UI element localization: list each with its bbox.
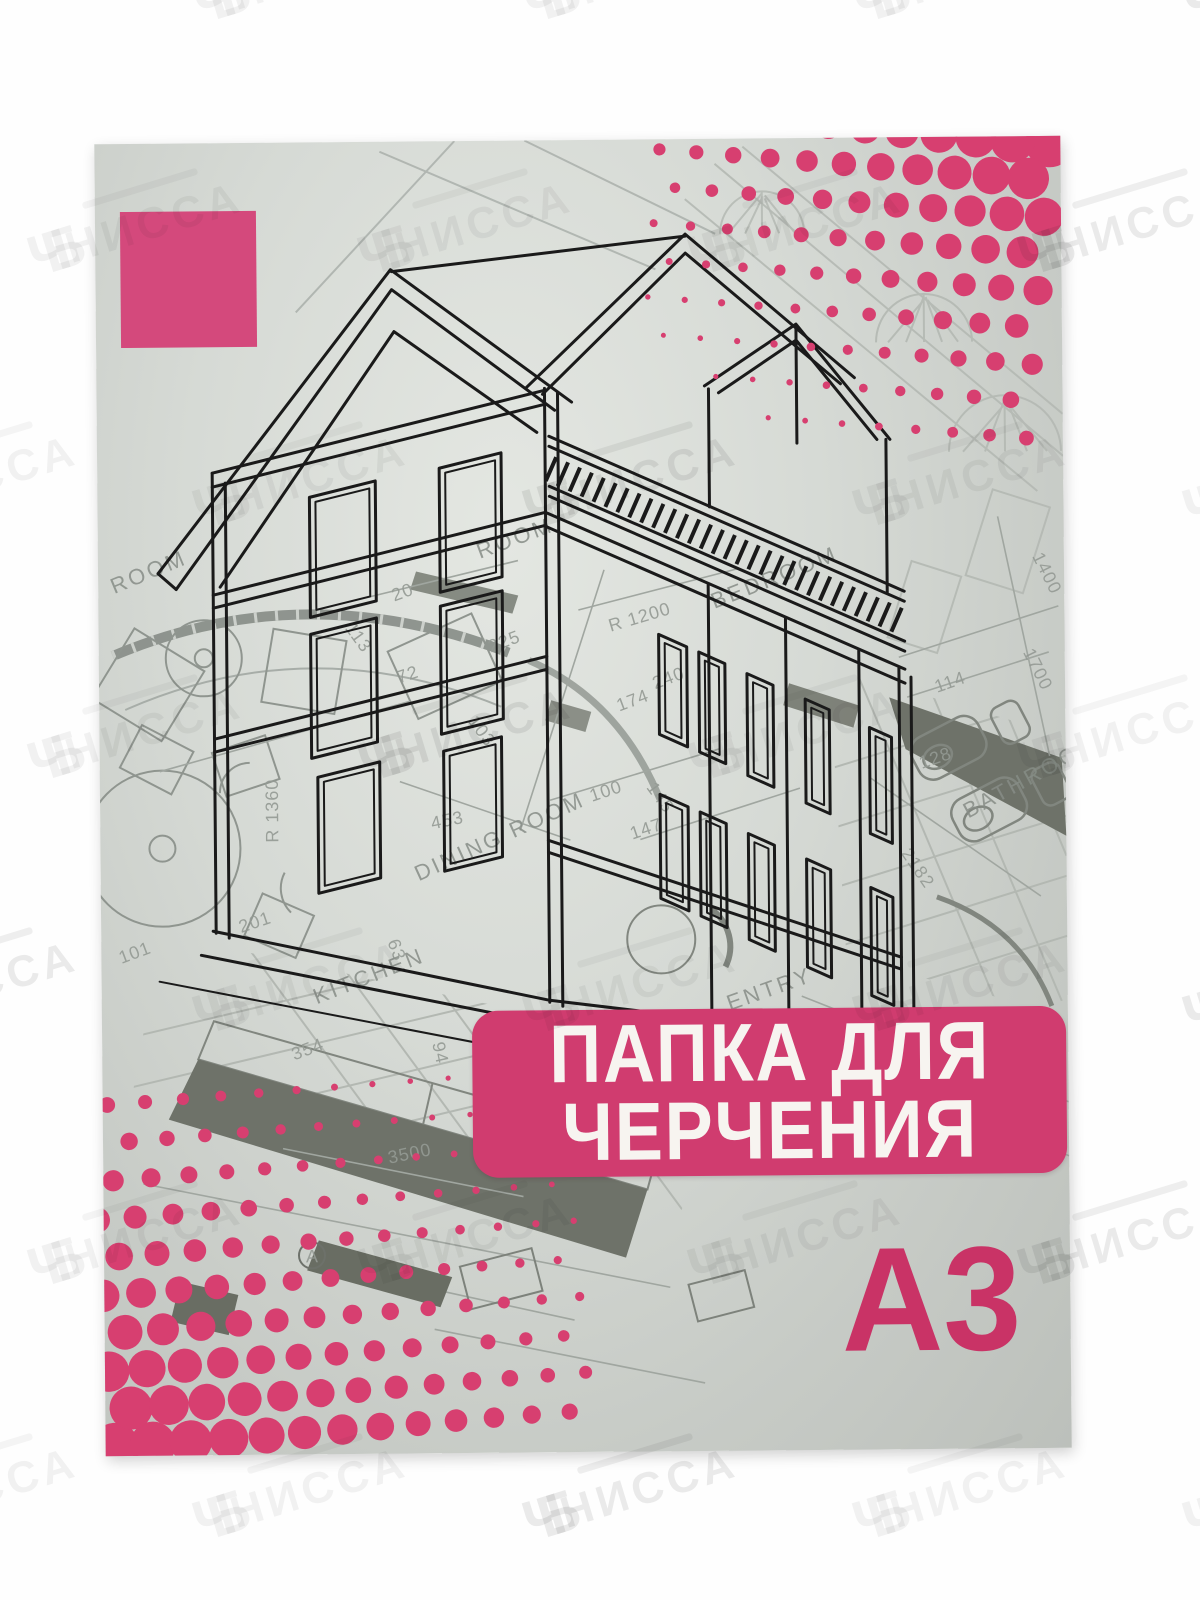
watermark-brand: НИССА [886,1441,1074,1536]
title-line-1: ПАПКА ДЛЯ [548,1012,990,1094]
blueprint-dim: 72 [394,661,421,687]
watermark-brand: НИССА [0,429,83,524]
watermark-brand: НИССА [1051,1188,1200,1283]
watermark: ЧБНИССА [846,1432,1074,1552]
nissa-logo-icon: ЧБ [21,1235,67,1299]
watermark-brand: НИССА [0,1441,83,1536]
blueprint-dim: 201 [236,907,274,936]
nissa-logo-icon: ЧБ [21,223,67,287]
nissa-logo-icon: ЧБ [186,0,232,34]
blueprint-dim: 94 [428,1040,452,1066]
watermark-brand: НИССА [226,0,414,18]
format-label: А3 [822,1244,1041,1356]
blueprint-dim: 174 [614,685,652,715]
watermark: ЧБНИССА [516,0,744,34]
watermark: ЧБНИССА [1176,926,1200,1046]
blueprint-dim: 453 [429,807,465,833]
halftone-top-right [632,136,1071,448]
watermark: ЧБНИССА [0,1432,85,1552]
nissa-logo-icon: ЧБ [846,0,892,34]
watermark: ЧБНИССА [0,0,85,34]
nissa-logo-icon: ЧБ [516,1488,562,1552]
nissa-logo-icon: ЧБ [21,729,67,793]
watermark-tagline-bar [0,1433,33,1475]
nissa-logo-icon: ЧБ [1176,476,1200,540]
watermark: ЧБНИССА [186,0,414,34]
watermark-brand: НИССА [1051,682,1200,777]
nissa-logo-icon: ЧБ [1176,1488,1200,1552]
blueprint-label-kitchen: KITCHEN [309,943,428,1009]
blueprint-dim: 100 [587,776,625,805]
watermark-brand: НИССА [556,1441,744,1536]
watermark-brand: НИССА [1051,176,1200,271]
watermark-tagline-bar [1072,168,1189,210]
watermark: ЧБНИССА [0,926,85,1046]
nissa-logo-icon: ЧБ [1176,982,1200,1046]
watermark-brand: НИССА [886,0,1074,18]
blueprint-dim: 114 [932,667,969,696]
title-banner: ПАПКА ДЛЯ ЧЕРЧЕНИЯ [472,1006,1067,1178]
blueprint-dim: 1400 [1028,549,1066,597]
blueprint-dim: R 1360 [262,779,283,843]
nissa-logo-icon: ЧБ [846,1488,892,1552]
watermark-tagline-bar [1072,1180,1189,1222]
blueprint-dim: 101 [116,937,154,967]
watermark: ЧБНИССА [1176,1432,1200,1552]
nissa-logo-icon: ЧБ [1176,0,1200,34]
watermark-tagline-bar [0,927,33,969]
folder-cover: ROOM ROOM DINING ROOM KITCHEN ENTRY BATH… [94,136,1071,1456]
watermark-brand: НИССА [556,0,744,18]
product-photo: ROOM ROOM DINING ROOM KITCHEN ENTRY BATH… [0,0,1200,1600]
title-line-2: ЧЕРЧЕНИЯ [562,1090,978,1172]
blueprint-dim: 20 [389,579,417,605]
magenta-square [120,211,257,348]
blueprint-dim: 354 [289,1034,327,1064]
watermark-brand: НИССА [0,0,83,18]
watermark: ЧБНИССА [0,420,85,540]
watermark-brand: НИССА [0,935,83,1030]
nissa-logo-icon: ЧБ [186,1488,232,1552]
watermark: ЧБНИССА [1176,420,1200,540]
watermark-tagline-bar [1072,674,1189,716]
blueprint-dim: 1700 [1019,645,1057,693]
watermark: ЧБНИССА [846,0,1074,34]
blueprint-label-room: ROOM [107,545,191,599]
nissa-logo-icon: ЧБ [516,0,562,34]
watermark-tagline-bar [0,421,33,463]
watermark: ЧБНИССА [1176,0,1200,34]
blueprint-dim: R 1200 [606,598,673,635]
